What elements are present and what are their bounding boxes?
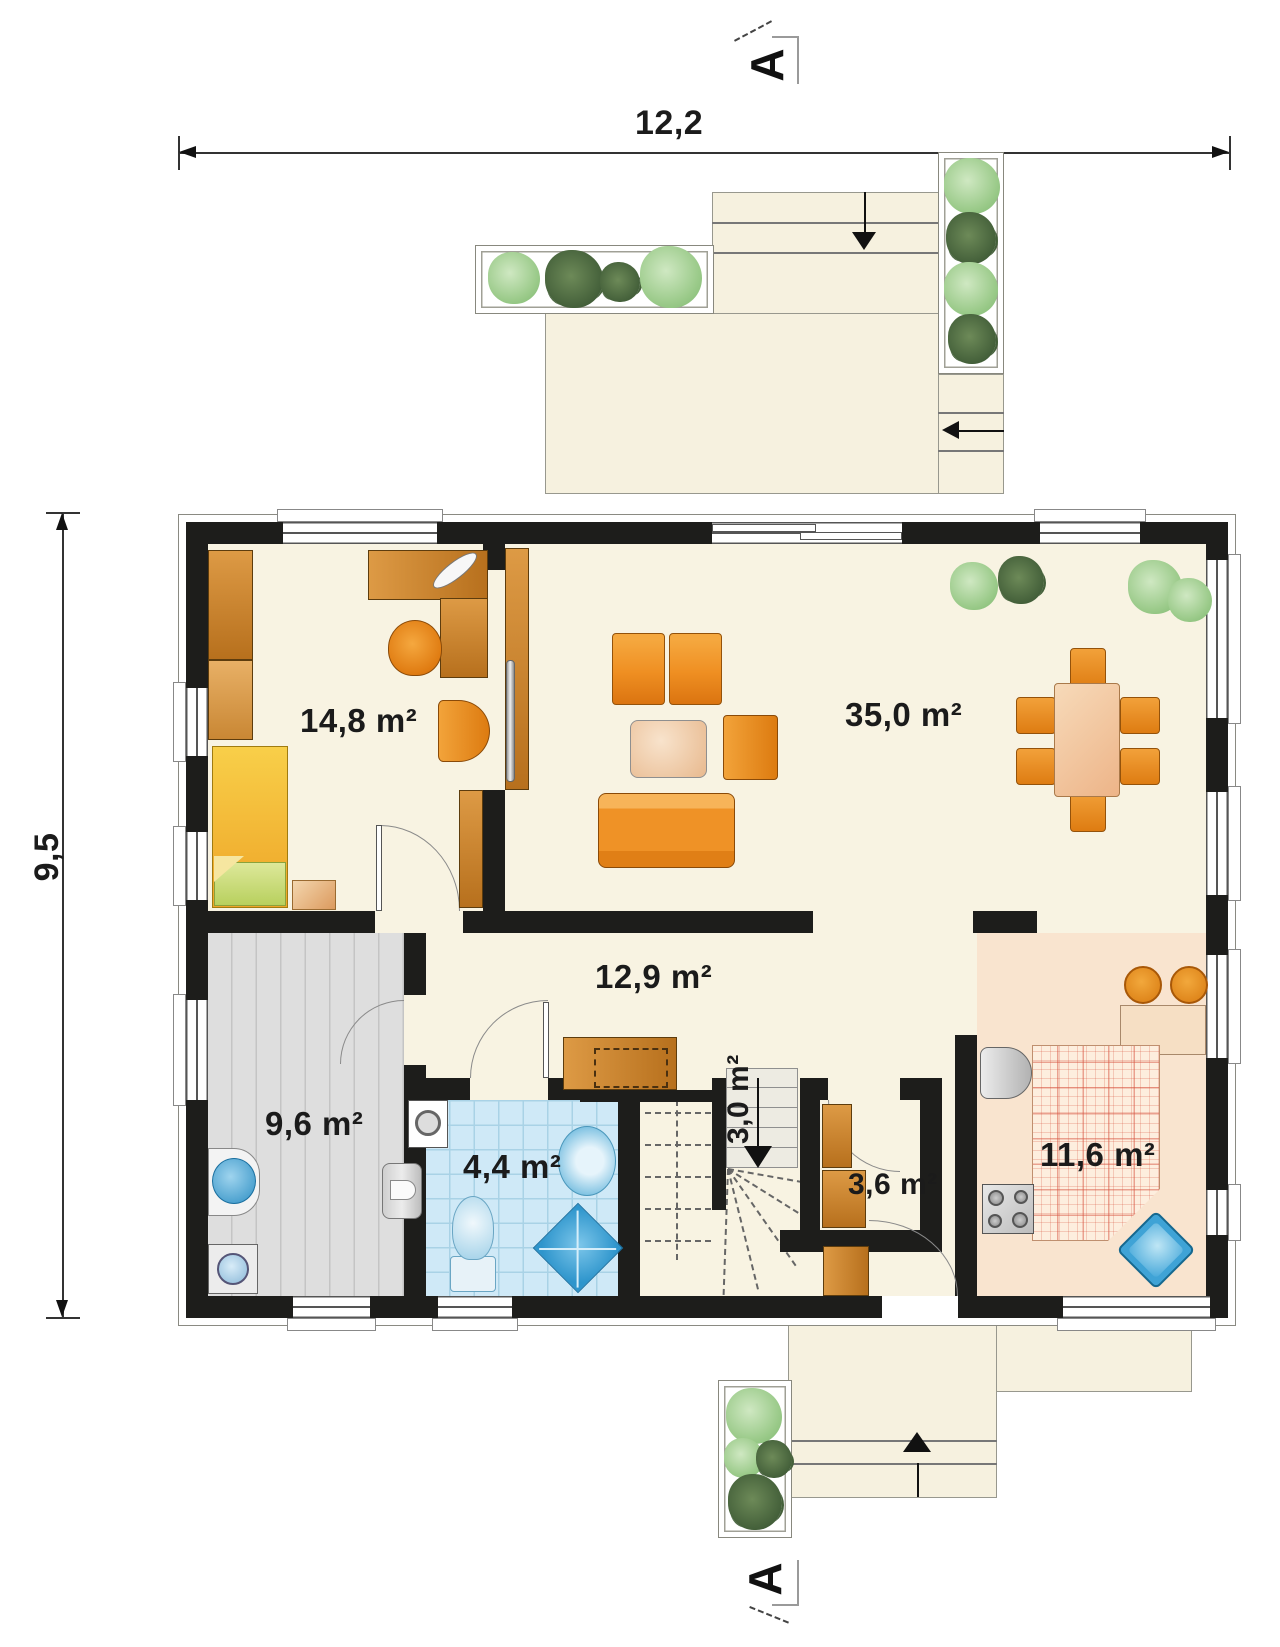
side-chair (723, 715, 778, 780)
sliding-door-handle-icon (506, 660, 515, 782)
burner-icon (988, 1214, 1002, 1228)
dining-chair (1120, 697, 1160, 734)
floor-plan-canvas: A 12,2 9,5 (0, 0, 1280, 1647)
sideboard-dashed-top (594, 1048, 668, 1088)
laundry-sink (212, 1158, 256, 1204)
window-sill (173, 994, 186, 1106)
stair-arrow-icon (744, 1146, 772, 1168)
stair-dashed-line (645, 1176, 711, 1178)
terrace-side-step-line (938, 450, 1004, 452)
stair-arrow-line (757, 1078, 759, 1148)
dining-chair (1016, 697, 1056, 734)
wall (1206, 1058, 1228, 1190)
dining-table (1054, 683, 1120, 797)
dimension-arrow-right-icon (1212, 146, 1229, 158)
dimension-tick-bottom (46, 1317, 80, 1319)
sofa (598, 793, 735, 868)
porch-side-strip (996, 1322, 1192, 1392)
wall (1206, 522, 1228, 560)
bar-stool (1124, 966, 1162, 1004)
wall (800, 1078, 820, 1252)
room-label-utility: 9,6 m² (265, 1105, 363, 1143)
wall (1206, 718, 1228, 792)
washer-drum-icon (415, 1110, 441, 1136)
planter-plant (545, 250, 603, 308)
dimension-height-label: 9,5 (28, 822, 58, 892)
room-label-kitchen: 11,6 m² (1040, 1136, 1155, 1174)
wall (1206, 895, 1228, 955)
terrace-side-arrow-icon (942, 421, 959, 439)
dimension-line-left (62, 512, 64, 1318)
wall (800, 1078, 828, 1100)
porch-step-line (788, 1440, 997, 1442)
stair-dashed-line (645, 1112, 711, 1114)
wall (483, 790, 505, 911)
dimension-line-top (178, 152, 1230, 154)
porch-floor (788, 1322, 997, 1498)
dining-chair (1016, 748, 1056, 785)
houseplant (998, 556, 1044, 604)
wall (580, 1090, 712, 1102)
stair-dashed-line (645, 1240, 711, 1242)
wall (618, 1078, 640, 1296)
window (1206, 955, 1228, 1058)
wall (186, 1296, 293, 1318)
window (1206, 560, 1228, 718)
wall (463, 911, 813, 933)
bar-stool (1170, 966, 1208, 1004)
wall (920, 1078, 942, 1252)
window-sill (432, 1318, 518, 1331)
wall (437, 522, 712, 544)
terrace-arrow-icon (852, 232, 876, 250)
sliding-pane (712, 524, 816, 532)
wall (973, 911, 1037, 933)
dimension-arrow-up-icon (56, 513, 68, 530)
wall (426, 1078, 470, 1100)
door-leaf-entry (823, 1246, 869, 1296)
closet-cabinet (822, 1104, 852, 1168)
planter-plant (726, 1388, 782, 1444)
room-label-closet: 3,6 m² (848, 1168, 938, 1202)
window (186, 832, 208, 900)
section-line-bottom-icon (749, 1606, 789, 1624)
sliding-door-panel (459, 790, 483, 908)
dining-chair (1120, 748, 1160, 785)
section-bracket-top-icon (772, 36, 799, 84)
burner-icon (988, 1190, 1004, 1206)
window-sill (1034, 509, 1146, 522)
burner-icon (1012, 1212, 1028, 1228)
sliding-pane (800, 532, 902, 540)
window (186, 1000, 208, 1100)
window-sill (287, 1318, 376, 1331)
dimension-width-label: 12,2 (635, 104, 703, 143)
stove (982, 1184, 1034, 1234)
section-bracket-bottom-icon (772, 1560, 799, 1606)
houseplant (1168, 578, 1212, 622)
fridge (980, 1047, 1032, 1099)
wall (404, 933, 426, 995)
stair-dashed-line (645, 1144, 711, 1146)
door-leaf-bathroom (543, 1002, 549, 1078)
window-sill (1228, 554, 1241, 724)
window-sill (173, 682, 186, 762)
window (1206, 792, 1228, 895)
section-line-top-icon (734, 20, 772, 41)
washbasin (558, 1126, 616, 1196)
coffee-table (630, 720, 707, 778)
room-label-bathroom: 4,4 m² (463, 1148, 561, 1186)
terrace-step-line (712, 252, 940, 254)
window (283, 522, 437, 544)
wall (900, 1078, 920, 1100)
window-sill (1228, 786, 1241, 901)
wall (955, 1035, 977, 1296)
wardrobe (208, 550, 253, 660)
toilet-tank (450, 1256, 496, 1292)
window-sill (277, 509, 443, 522)
porch-arrow-line (917, 1463, 919, 1497)
wall (208, 911, 375, 933)
window (1206, 1190, 1228, 1235)
planter-plant (756, 1440, 792, 1478)
planter-plant (488, 252, 540, 304)
planter-plant (640, 246, 702, 308)
stair-dashed-line (676, 1100, 678, 1260)
window (186, 688, 208, 756)
window (438, 1296, 512, 1318)
window-sill (1057, 1318, 1216, 1331)
window (1063, 1296, 1210, 1318)
wall (370, 1296, 438, 1318)
window-sill (1228, 949, 1241, 1064)
burner-icon (1014, 1190, 1028, 1204)
dimension-arrow-down-icon (56, 1300, 68, 1317)
planter-plant (946, 212, 996, 264)
wall (958, 1296, 1063, 1318)
toilet-bowl (452, 1196, 494, 1260)
room-label-stairs: 3,0 m² (722, 1060, 750, 1144)
wall (186, 522, 208, 688)
terrace-floor (545, 312, 940, 494)
washing-machine-door-icon (217, 1253, 249, 1285)
planter-plant (944, 262, 998, 316)
kitchen-sink-basin (1128, 1222, 1185, 1279)
planter-plant (728, 1474, 782, 1530)
dimension-tick-right (1229, 136, 1231, 170)
window-sill (1228, 1184, 1241, 1241)
wall (186, 756, 208, 832)
room-label-bedroom: 14,8 m² (300, 702, 417, 740)
office-chair (388, 620, 442, 676)
armchair (612, 633, 665, 705)
door-leaf-bedroom (376, 825, 382, 911)
bed-fold-icon (214, 856, 244, 882)
dimension-arrow-left-icon (179, 146, 196, 158)
wall (186, 900, 208, 1000)
window (293, 1296, 370, 1318)
wall (902, 522, 1040, 544)
planter-plant (944, 158, 1000, 214)
wardrobe (208, 660, 253, 740)
houseplant (950, 562, 998, 610)
room-label-living: 35,0 m² (845, 696, 962, 734)
terrace-side-arrow-line (958, 430, 1004, 432)
stair-dashed-line (645, 1208, 711, 1210)
window (1040, 522, 1140, 544)
porch-step-line (788, 1463, 997, 1465)
terrace-arrow-line (864, 192, 866, 232)
planter-plant (948, 314, 996, 364)
armchair (669, 633, 722, 705)
wall (512, 1296, 882, 1318)
terrace-side-step-line (938, 412, 1004, 414)
water-heater-notch (390, 1180, 416, 1200)
wall (186, 1100, 208, 1296)
room-label-hall: 12,9 m² (595, 958, 712, 996)
window-sill (173, 826, 186, 906)
bedside-table (292, 880, 336, 910)
planter-plant (600, 262, 640, 302)
desk (440, 598, 488, 678)
terrace-step-line (712, 222, 940, 224)
shower-cross-icon (539, 1248, 616, 1250)
porch-arrow-icon (903, 1432, 931, 1452)
